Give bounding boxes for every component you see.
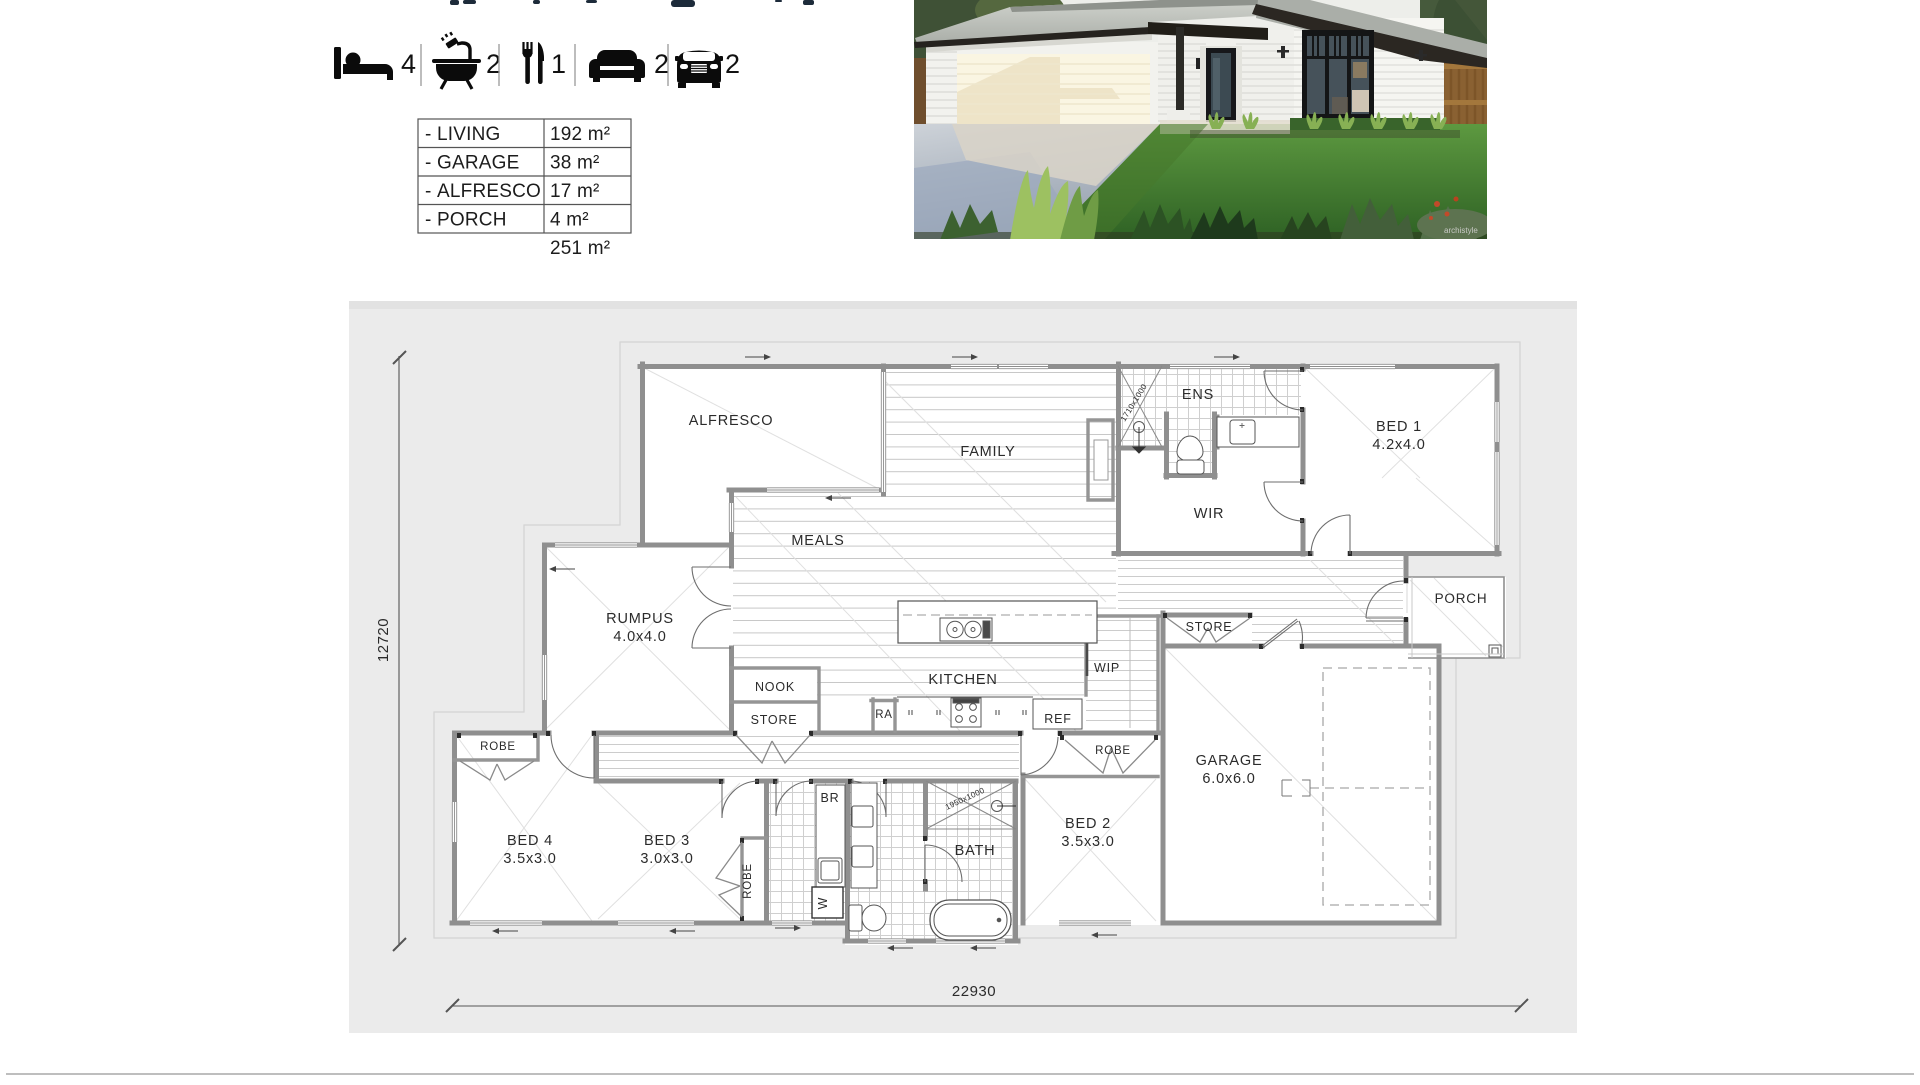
svg-text:251 m²: 251 m²: [550, 238, 610, 259]
svg-text:2: 2: [725, 49, 740, 79]
svg-text:1: 1: [551, 49, 566, 79]
svg-text:REF: REF: [1044, 712, 1071, 726]
svg-text:MEALS: MEALS: [791, 533, 844, 549]
svg-text:BED 3: BED 3: [644, 833, 690, 849]
svg-text:-: -: [425, 124, 432, 145]
svg-text:4: 4: [401, 49, 416, 79]
svg-text:LIVING: LIVING: [437, 124, 501, 145]
svg-text:ROBE: ROBE: [1095, 745, 1131, 757]
svg-text:ENS: ENS: [1182, 387, 1214, 403]
svg-text:-: -: [425, 181, 432, 202]
svg-text:BED 1: BED 1: [1376, 419, 1422, 435]
svg-text:STORE: STORE: [751, 713, 798, 727]
svg-text:NOOK: NOOK: [755, 680, 795, 694]
svg-text:4.0x4.0: 4.0x4.0: [613, 629, 666, 645]
svg-text:6.0x6.0: 6.0x6.0: [1202, 771, 1255, 787]
svg-text:WIP: WIP: [1094, 661, 1120, 675]
svg-text:PORCH: PORCH: [1435, 591, 1488, 606]
svg-text:BED 2: BED 2: [1065, 816, 1111, 832]
svg-text:4.2x4.0: 4.2x4.0: [1372, 437, 1425, 453]
svg-text:38 m²: 38 m²: [550, 153, 600, 174]
svg-text:3.0x3.0: 3.0x3.0: [640, 851, 693, 867]
svg-text:RUMPUS: RUMPUS: [606, 611, 674, 627]
svg-text:192 m²: 192 m²: [550, 124, 610, 145]
svg-text:-: -: [425, 210, 432, 231]
svg-text:PORCH: PORCH: [437, 210, 507, 231]
svg-text:archistyle: archistyle: [1444, 226, 1478, 235]
svg-text:GARAGE: GARAGE: [1196, 753, 1263, 769]
svg-text:3.5x3.0: 3.5x3.0: [1061, 834, 1114, 850]
svg-text:ALFRESCO: ALFRESCO: [437, 181, 541, 202]
svg-text:ROBE: ROBE: [480, 741, 516, 753]
svg-text:BED 4: BED 4: [507, 833, 553, 849]
svg-text:BATH: BATH: [955, 843, 996, 859]
svg-text:RA: RA: [875, 709, 893, 721]
svg-text:GARAGE: GARAGE: [437, 153, 520, 174]
svg-text:ROBE: ROBE: [742, 863, 754, 899]
svg-text:3.5x3.0: 3.5x3.0: [503, 851, 556, 867]
svg-text:-: -: [425, 153, 432, 174]
svg-text:22930: 22930: [952, 983, 996, 1000]
svg-text:17 m²: 17 m²: [550, 181, 600, 202]
svg-text:STORE: STORE: [1186, 620, 1233, 634]
svg-text:FAMILY: FAMILY: [960, 444, 1015, 460]
svg-text:KITCHEN: KITCHEN: [928, 672, 997, 688]
svg-text:2: 2: [654, 49, 669, 79]
svg-text:12720: 12720: [375, 618, 392, 662]
svg-text:4 m²: 4 m²: [550, 210, 589, 231]
svg-text:WIR: WIR: [1194, 506, 1225, 522]
svg-text:BR: BR: [821, 791, 840, 805]
svg-text:ALFRESCO: ALFRESCO: [689, 413, 774, 429]
svg-text:W: W: [816, 897, 830, 910]
